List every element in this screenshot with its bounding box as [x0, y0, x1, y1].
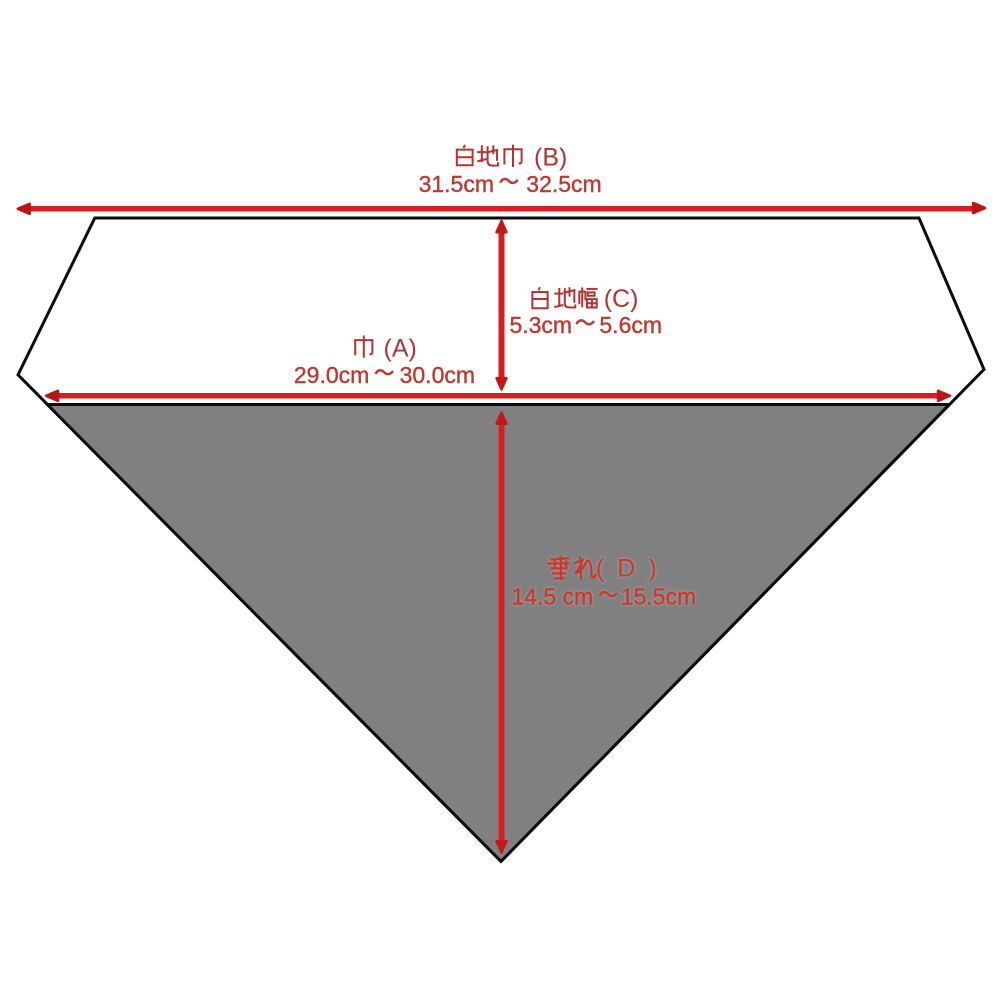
svg-text:31.5cm: 31.5cm: [419, 171, 494, 197]
svg-text:30.0cm: 30.0cm: [400, 362, 475, 388]
svg-text:5.6cm: 5.6cm: [599, 312, 662, 338]
svg-text:(C): (C): [604, 285, 639, 313]
svg-text:15.5cm: 15.5cm: [621, 584, 696, 610]
svg-text:32.5cm: 32.5cm: [526, 171, 601, 197]
svg-text:14.5 cm: 14.5 cm: [511, 584, 593, 610]
svg-text:5.3cm: 5.3cm: [509, 312, 572, 338]
svg-text:(B): (B): [534, 144, 567, 172]
svg-text:29.0cm: 29.0cm: [294, 362, 369, 388]
svg-text:( D ): ( D ): [596, 555, 660, 583]
svg-text:(A): (A): [384, 334, 417, 362]
